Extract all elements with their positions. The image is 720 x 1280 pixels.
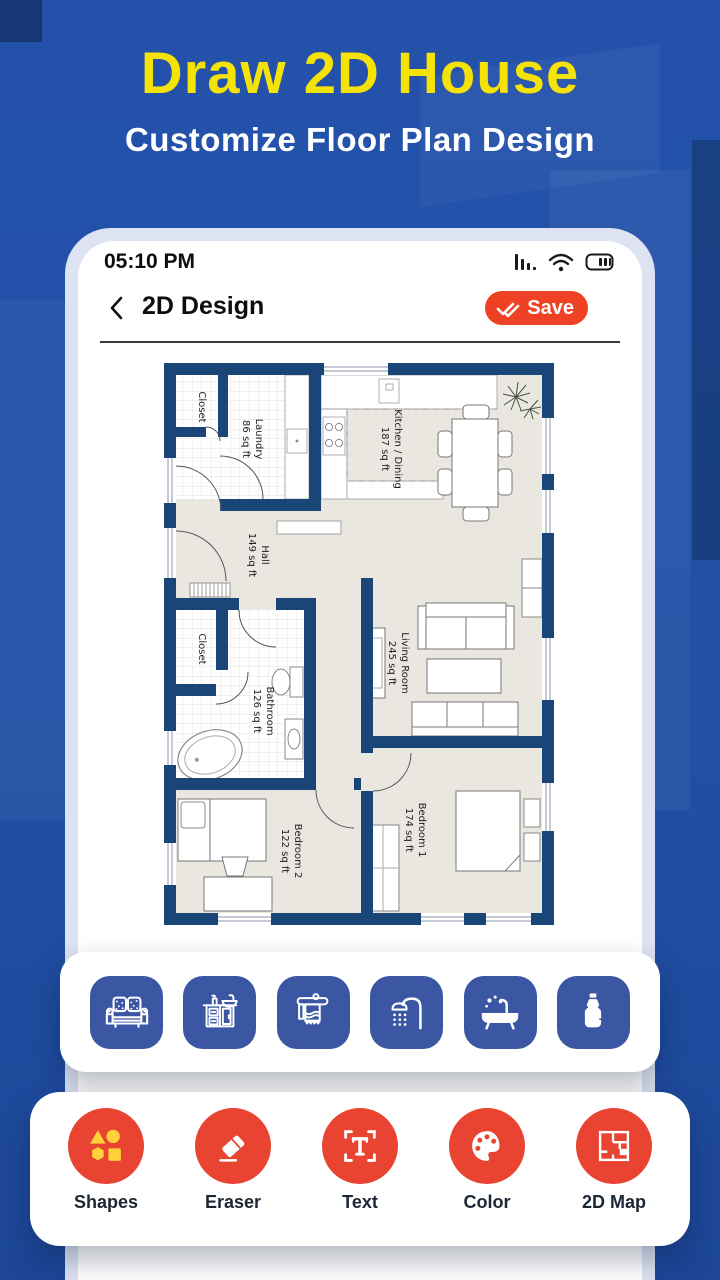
room-label-kitchen: Kitchen / Dining xyxy=(392,409,403,489)
shower-icon xyxy=(384,989,430,1035)
room-area-laundry: 86 sq ft xyxy=(240,420,251,458)
hero-banner: Draw 2D House Customize Floor Plan Desig… xyxy=(0,40,720,159)
tool-2d-map: 2D Map xyxy=(564,1108,664,1213)
floor-plan-canvas[interactable]: Closet Laundry 86 sq ft Kitchen / Dining… xyxy=(164,363,554,925)
eraser-button[interactable] xyxy=(195,1108,271,1184)
room-label-bathroom: Bathroom xyxy=(264,686,275,735)
tool-text: Text xyxy=(310,1108,410,1213)
room-area-hall: 149 sq ft xyxy=(246,533,257,577)
tool-shapes: Shapes xyxy=(56,1108,156,1213)
double-check-icon xyxy=(495,297,521,319)
water-bottle-icon xyxy=(570,989,616,1035)
furniture-water-bottle-button[interactable] xyxy=(557,976,630,1049)
tools-panel: Shapes Eraser xyxy=(30,1092,690,1246)
towel-rack-icon xyxy=(290,989,336,1035)
room-label-closet2: Closet xyxy=(196,633,207,664)
tool-label-shapes: Shapes xyxy=(74,1192,138,1213)
furniture-toolbar xyxy=(60,952,660,1072)
room-label-living: Living Room xyxy=(399,632,410,693)
bathtub-icon xyxy=(477,989,523,1035)
color-icon xyxy=(464,1123,510,1169)
tool-label-2d-map: 2D Map xyxy=(582,1192,646,1213)
room-label-laundry: Laundry xyxy=(253,419,264,460)
status-time: 05:10 PM xyxy=(104,250,195,274)
room-label-bedroom2: Bedroom 2 xyxy=(292,824,303,879)
header-divider xyxy=(100,341,620,343)
tool-label-color: Color xyxy=(464,1192,511,1213)
room-label-bedroom1: Bedroom 1 xyxy=(416,803,427,858)
floor-plan-drawing: Closet Laundry 86 sq ft Kitchen / Dining… xyxy=(164,363,554,925)
shapes-button[interactable] xyxy=(68,1108,144,1184)
page-title: 2D Design xyxy=(142,292,264,321)
app-bar: 2D Design Save xyxy=(102,291,618,327)
room-area-bedroom1: 174 sq ft xyxy=(403,808,414,852)
back-chevron-icon xyxy=(106,295,128,321)
text-button[interactable] xyxy=(322,1108,398,1184)
save-button-label: Save xyxy=(527,297,574,320)
furniture-sofa-button[interactable] xyxy=(90,976,163,1049)
furniture-shower-button[interactable] xyxy=(370,976,443,1049)
save-button[interactable]: Save xyxy=(485,291,588,325)
furniture-bathtub-button[interactable] xyxy=(464,976,537,1049)
room-area-bedroom2: 122 sq ft xyxy=(279,829,290,873)
furniture-kitchen-sink-button[interactable] xyxy=(183,976,256,1049)
tool-label-text: Text xyxy=(342,1192,378,1213)
wifi-icon xyxy=(548,251,574,273)
room-area-kitchen: 187 sq ft xyxy=(379,427,390,471)
kitchen-sink-icon xyxy=(197,989,243,1035)
cell-signal-icon xyxy=(514,251,538,273)
battery-icon xyxy=(584,251,616,273)
hero-title: Draw 2D House xyxy=(0,40,720,107)
status-bar: 05:10 PM xyxy=(102,247,618,277)
room-label-hall: Hall xyxy=(259,545,270,564)
text-icon xyxy=(337,1123,383,1169)
sofa-icon xyxy=(104,989,150,1035)
hero-subtitle: Customize Floor Plan Design xyxy=(0,121,720,159)
back-button[interactable] xyxy=(102,294,132,324)
color-button[interactable] xyxy=(449,1108,525,1184)
tool-label-eraser: Eraser xyxy=(205,1192,261,1213)
room-area-living: 245 sq ft xyxy=(386,641,397,685)
room-label-closet1: Closet xyxy=(196,391,207,422)
map-2d-button[interactable] xyxy=(576,1108,652,1184)
tool-eraser: Eraser xyxy=(183,1108,283,1213)
furniture-towel-rack-button[interactable] xyxy=(277,976,350,1049)
shapes-icon xyxy=(83,1123,129,1169)
map-2d-icon xyxy=(591,1123,637,1169)
app-store-screenshot: Draw 2D House Customize Floor Plan Desig… xyxy=(0,0,720,1280)
eraser-icon xyxy=(210,1123,256,1169)
tool-color: Color xyxy=(437,1108,537,1213)
room-area-bathroom: 126 sq ft xyxy=(251,689,262,733)
